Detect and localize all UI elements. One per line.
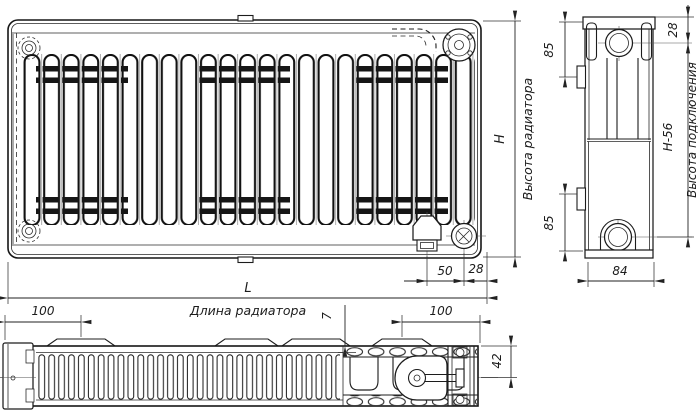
dim-42: 42 xyxy=(481,346,517,378)
dim-label-50: 50 xyxy=(437,264,453,278)
dim-label-h56: H-56 xyxy=(661,122,675,151)
dim-100-left: 100 xyxy=(5,304,81,340)
caption-height: Высота радиатора xyxy=(520,78,535,200)
dim-28-side: 28 xyxy=(655,5,694,43)
dim-label-l: L xyxy=(244,281,251,296)
dim-label-100-right: 100 xyxy=(430,304,453,318)
bracket-tab-top xyxy=(577,66,586,88)
mount-tab-2 xyxy=(215,339,278,346)
front-view xyxy=(8,16,486,263)
dim-h56: H-56 Высота подключения xyxy=(657,43,699,237)
mount-tab-3 xyxy=(282,339,350,346)
mount-tab-4 xyxy=(372,339,432,346)
top-clip xyxy=(238,16,253,22)
radiator-drawing: H Высота радиатора L Длина радиатора 50 … xyxy=(0,0,700,416)
dim-label-h: H xyxy=(493,134,508,144)
top-grille-slots xyxy=(37,354,340,400)
dim-height-h: H Высота радиатора xyxy=(483,21,535,257)
dim-label-85-bottom: 85 xyxy=(542,215,556,230)
dim-label-84: 84 xyxy=(612,264,627,278)
bracket-tab-bottom xyxy=(577,188,586,210)
bottom-clip xyxy=(238,257,253,263)
dim-label-85-top: 85 xyxy=(542,42,556,57)
caption-length: Длина радиатора xyxy=(189,303,306,318)
top-view xyxy=(0,339,498,409)
dim-label-42: 42 xyxy=(490,353,504,368)
dim-label-100-left: 100 xyxy=(32,304,55,318)
dim-label-28-front: 28 xyxy=(468,262,484,276)
dim-label-7: 7 xyxy=(320,312,334,320)
drawing-canvas: H Высота радиатора L Длина радиатора 50 … xyxy=(0,0,700,416)
caption-connection-height: Высота подключения xyxy=(685,62,699,198)
section-cut xyxy=(343,346,478,406)
dim-100-right: 100 xyxy=(402,304,480,343)
dim-84: 84 xyxy=(588,262,654,287)
mount-tab-1 xyxy=(47,339,115,346)
dim-label-28-side: 28 xyxy=(666,22,680,38)
